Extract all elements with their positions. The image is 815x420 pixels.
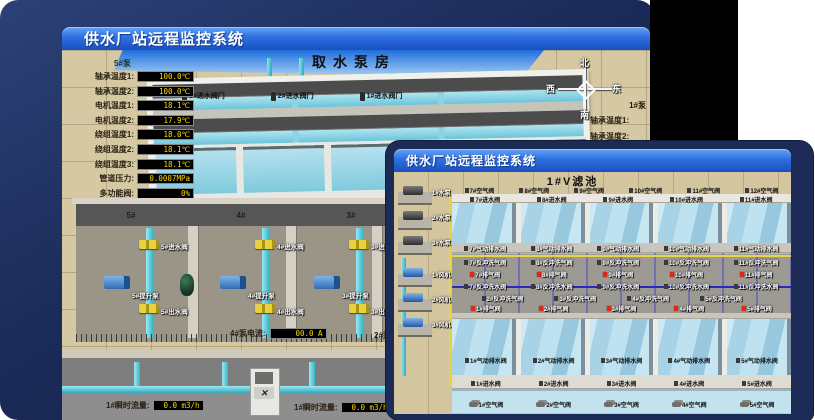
outlet-valve-icon[interactable] — [255, 304, 275, 313]
data-row: 管道压力: 0.0007MPa — [72, 173, 194, 184]
data-row-label: 绕组温度1: — [95, 129, 134, 140]
valve-label: 7#反冲洗气阀 — [469, 258, 506, 267]
exhaust-valve[interactable]: 2#排气阀 — [539, 304, 569, 313]
valve-label: 10#排气阀 — [675, 270, 703, 279]
valve-icon — [734, 284, 738, 289]
valve-icon — [533, 358, 537, 363]
valve-label: 2#进水阀 — [544, 379, 569, 388]
filter-cell[interactable] — [452, 319, 516, 375]
backwash-air-valve[interactable]: 8#反冲洗气阀 — [531, 258, 573, 267]
backwash-air-valve[interactable]: 9#反冲洗气阀 — [597, 258, 639, 267]
valve-icon — [471, 381, 475, 386]
valve-icon — [465, 358, 469, 363]
exhaust-valve[interactable]: 5#排气阀 — [742, 304, 772, 313]
backwash-air-valve-row: 7#反冲洗气阀 8#反冲洗气阀 9#反冲洗气阀 10#反冲洗气阀 — [452, 258, 791, 267]
valve-label: 4#进水阀 — [679, 379, 704, 388]
machine-column: 1#水泵 2#水泵 3#水泵 1#风机 2#风机 — [394, 180, 452, 380]
pump-icon[interactable] — [314, 276, 340, 289]
valve-label: 4#反冲洗气阀 — [632, 294, 669, 303]
valve-icon — [607, 381, 611, 386]
pump-icon[interactable] — [104, 276, 130, 289]
blower-unit[interactable]: 1#风机 — [398, 266, 452, 286]
backwash-air-valve[interactable]: 5#反冲洗气阀 — [700, 294, 742, 303]
valve-icon — [674, 381, 678, 386]
pipe-riser-icon — [267, 58, 272, 77]
current-label: 4#泵电流: — [230, 328, 266, 339]
pump5-panel-title: 5#泵 — [114, 58, 131, 69]
pump-label: 5#提升泵 — [132, 290, 159, 300]
drain-valve-row-bottom: 1#气动排水阀 2#气动排水阀 3#气动排水阀 4#气动排水阀 5#气动排水阀 — [452, 356, 791, 365]
valve-icon — [539, 381, 543, 386]
valve-label: 1#进水阀 — [476, 379, 501, 388]
filter-cell[interactable] — [727, 203, 791, 243]
exhaust-valve[interactable]: 10#排气阀 — [670, 270, 703, 279]
filter-cell[interactable] — [658, 319, 722, 375]
valve-label: 4#排气阀 — [679, 304, 704, 313]
valve-label: 2#空气阀 — [546, 400, 571, 409]
valve-label: 2#排气阀 — [544, 304, 569, 313]
valve-icon — [271, 92, 276, 101]
data-row-label: 电机温度1: — [95, 100, 134, 111]
outlet-valve-icon[interactable] — [349, 304, 369, 313]
pump-unit[interactable]: 3#水泵 — [398, 234, 452, 254]
backwash-air-valve[interactable]: 7#反冲洗气阀 — [464, 258, 506, 267]
air-valve-icon — [604, 402, 613, 407]
valve-icon — [519, 188, 523, 193]
inlet-valve[interactable]: 2#进水阀 — [539, 379, 569, 388]
pump-label: 1#水泵 — [432, 188, 451, 197]
lcd-readout[interactable]: 17.9℃ — [137, 115, 194, 126]
pipe-stub-icon — [309, 362, 315, 387]
valve-icon — [670, 197, 674, 202]
valve-icon — [465, 188, 469, 193]
pipe-riser-icon — [299, 58, 304, 77]
pump-bay: 3#进水阀 3#提升泵 3#出水阀 — [296, 228, 392, 340]
air-valve-icon — [740, 402, 749, 407]
valve-label: 1#排气阀 — [476, 304, 501, 313]
lcd-readout[interactable]: 00.0 A — [270, 328, 327, 339]
pipe-stub-icon — [134, 362, 140, 387]
lcd-readout[interactable]: 18.1℃ — [137, 159, 194, 170]
valve-icon — [464, 246, 468, 251]
compass-south: 南 — [580, 108, 589, 121]
filter-cell[interactable] — [452, 203, 516, 243]
drain-valve[interactable]: 2#气动排水阀 — [533, 356, 575, 365]
inlet-valve[interactable]: 4#进水阀 — [674, 379, 704, 388]
inlet-valve[interactable]: 3#进水阀 — [607, 379, 637, 388]
exhaust-valve-icon — [742, 306, 746, 311]
data-row: 绕组温度2: 18.1℃ — [72, 144, 194, 155]
data-row: 轴承温度2: 100.0℃ — [72, 86, 194, 97]
pump-unit[interactable]: 2#水泵 — [398, 209, 452, 229]
valve-icon — [734, 246, 738, 251]
pump-label: 2#水泵 — [432, 213, 451, 222]
inlet-valve-label: 5#进水阀 — [161, 241, 188, 251]
valve-label: 3#反冲洗气阀 — [559, 294, 596, 303]
exhaust-valve[interactable]: 4#排气阀 — [674, 304, 704, 313]
valve-label: 7#气动排水阀 — [469, 244, 506, 253]
valve-label: 3#排气阀 — [612, 304, 637, 313]
valve-icon — [664, 260, 668, 265]
inlet-valve[interactable]: 2#进水阀门 — [271, 91, 314, 101]
valve-label: 5#气动排水阀 — [741, 356, 778, 365]
data-row-label: 轴承温度1: — [95, 71, 134, 82]
blower-icon — [403, 268, 423, 277]
pump-bay: 4#进水阀 4#提升泵 4#出水阀 — [202, 228, 298, 340]
data-row: 电机温度2: 17.9℃ — [72, 115, 194, 126]
data-row-label: 绕组温度3: — [95, 159, 134, 170]
filter-pools-bottom — [452, 319, 791, 375]
pipe-gallery: 7#反冲洗气阀 8#反冲洗气阀 9#反冲洗气阀 10#反冲洗气阀 — [452, 253, 791, 313]
filter-pools-top — [452, 203, 791, 243]
valve-label: 8#排气阀 — [542, 270, 567, 279]
drain-valve[interactable]: 9#气动排水阀 — [597, 244, 639, 253]
exhaust-valve-icon — [539, 306, 543, 311]
compass-north: 北 — [580, 56, 589, 69]
valve-label: 8#反冲洗水阀 — [536, 282, 573, 291]
valve-label: 3#进水阀 — [612, 379, 637, 388]
filter-cell[interactable] — [521, 203, 585, 243]
lcd-readout[interactable]: 100.0℃ — [137, 86, 194, 97]
valve-icon — [700, 296, 704, 301]
flow-readout-2: 1#瞬时流量: 0.0 m3/h — [294, 402, 392, 413]
exhaust-valve-row-lower: 1#排气阀 2#排气阀 3#排气阀 4#排气阀 5#排气阀 — [452, 304, 791, 313]
blower-unit[interactable]: 2#风机 — [398, 291, 452, 311]
backwash-pumps: 1#水泵 2#水泵 3#水泵 — [398, 184, 452, 254]
air-valve[interactable]: 4#空气阀 — [672, 400, 707, 409]
exhaust-valve[interactable]: 1#排气阀 — [471, 304, 501, 313]
lcd-readout[interactable]: 100.0℃ — [137, 71, 194, 82]
drain-valve[interactable]: 8#气动排水阀 — [531, 244, 573, 253]
valve-label: 1#空气阀 — [479, 400, 504, 409]
valve-icon — [664, 284, 668, 289]
valve-icon — [574, 188, 578, 193]
lcd-readout[interactable]: 18.0℃ — [137, 129, 194, 140]
blower-unit[interactable]: 3#风机 — [398, 316, 452, 336]
valve-label: 11#气动排水阀 — [739, 244, 779, 253]
drain-valve[interactable]: 5#气动排水阀 — [736, 356, 778, 365]
valve-label: 9#排气阀 — [608, 270, 633, 279]
air-valve-row-bottom: 1#空气阀 2#空气阀 3#空气阀 4#空气阀 5#空气阀 — [452, 400, 791, 409]
valve-icon — [736, 358, 740, 363]
pump-unit[interactable]: 1#水泵 — [398, 184, 452, 204]
outlet-main-pipe — [62, 386, 404, 393]
backwash-water-valve[interactable]: 10#反冲洗水阀 — [664, 282, 709, 291]
dosing-tank-icon[interactable] — [180, 274, 194, 296]
valve-label: 1#气动排水阀 — [470, 356, 507, 365]
scene1-heading: 取水泵房 — [312, 52, 396, 72]
backwash-air-valve[interactable]: 2#反冲洗气阀 — [482, 294, 524, 303]
drain-valve[interactable]: 1#气动排水阀 — [465, 356, 507, 365]
inlet-valve[interactable]: 1#进水阀 — [471, 379, 501, 388]
blower-label: 3#风机 — [432, 320, 451, 329]
outlet-valve-label: 5#出水阀 — [161, 306, 188, 316]
valve-label: 10#反冲洗水阀 — [669, 282, 709, 291]
compass-east: 东 — [612, 82, 621, 95]
pump-label: 3#水泵 — [432, 238, 451, 247]
window-v-filter: 供水厂站远程监控系统 1#V滤池 1#水泵 2#水泵 3#水泵 — [386, 141, 813, 420]
exhaust-valve-icon — [537, 272, 541, 277]
valve-icon — [537, 197, 541, 202]
drain-valve[interactable]: 7#气动排水阀 — [464, 244, 506, 253]
valve-label: 5#空气阀 — [750, 400, 775, 409]
valve-label: 7#反冲洗水阀 — [469, 282, 506, 291]
lcd-readout[interactable]: 18.1℃ — [137, 144, 194, 155]
valve-label: 11#排气阀 — [745, 270, 773, 279]
air-valve-icon — [536, 402, 545, 407]
window2-title: 供水厂站远程监控系统 — [394, 152, 536, 169]
inlet-valve-label: 1#进水阀门 — [367, 91, 403, 101]
filter-cell[interactable] — [521, 319, 585, 375]
air-valve[interactable]: 2#空气阀 — [536, 400, 571, 409]
pump-icon — [403, 186, 423, 195]
exhaust-valve-icon — [470, 272, 474, 277]
backwash-air-valve-row-lower: 2#反冲洗气阀 3#反冲洗气阀 4#反冲洗气阀 5#反冲洗气阀 — [466, 294, 758, 303]
inlet-valve-icon[interactable] — [255, 240, 275, 249]
flow-label: 1#瞬时流量: — [294, 402, 338, 413]
valve-icon — [554, 296, 558, 301]
inlet-valve-row: 3#进水阀门 2#进水阀门 1#进水阀门 — [182, 91, 532, 101]
filter-cell[interactable] — [727, 319, 791, 375]
valve-label: 10#反冲洗气阀 — [669, 258, 709, 267]
lcd-readout[interactable]: 0.0 m3/h — [341, 402, 392, 413]
pump-label: 3#提升泵 — [342, 290, 369, 300]
valve-label: 5#进水阀 — [747, 379, 772, 388]
bay-number-label: 3# — [347, 211, 356, 220]
lcd-readout[interactable]: 0.0 m3/h — [153, 400, 204, 411]
backwash-water-valve[interactable]: 8#反冲洗水阀 — [531, 282, 573, 291]
pipe-stub-icon — [222, 362, 228, 387]
valve-label: 2#气动排水阀 — [538, 356, 575, 365]
air-valve-icon — [469, 402, 478, 407]
valve-label: 9#反冲洗水阀 — [602, 282, 639, 291]
pump-icon — [403, 211, 423, 220]
blower-label: 2#风机 — [432, 295, 451, 304]
inlet-valve[interactable]: 5#进水阀 — [742, 379, 772, 388]
valve-icon — [603, 197, 607, 202]
backwash-water-valve[interactable]: 7#反冲洗水阀 — [464, 282, 506, 291]
valve-label: 3#气动排水阀 — [606, 356, 643, 365]
inlet-valve[interactable]: 1#进水阀门 — [360, 91, 403, 101]
drain-valve[interactable]: 4#气动排水阀 — [668, 356, 710, 365]
data-row: 绕组温度3: 18.1℃ — [72, 159, 194, 170]
valve-label: 4#空气阀 — [682, 400, 707, 409]
valve-icon — [531, 260, 535, 265]
flow-readout-1: 1#瞬时流量: 0.0 m3/h — [106, 400, 204, 411]
exhaust-valve-icon — [607, 306, 611, 311]
window2-titlebar[interactable]: 供水厂站远程监控系统 — [394, 149, 791, 172]
exhaust-valve-row-upper: 7#排气阀 8#排气阀 9#排气阀 10#排气阀 11#排气阀 — [452, 270, 791, 279]
backwash-air-valve[interactable]: 3#反冲洗气阀 — [554, 294, 596, 303]
bay-number-label: 5# — [127, 211, 136, 220]
valve-icon — [360, 92, 365, 101]
data-row-label: 绕组温度2: — [95, 144, 134, 155]
exhaust-valve-icon — [674, 306, 678, 311]
air-valve[interactable]: 3#空气阀 — [604, 400, 639, 409]
valve-icon — [464, 284, 468, 289]
pump1-panel-rows: 轴承温度1:轴承温度2: — [590, 115, 650, 142]
inlet-valve-row-bottom: 1#进水阀 2#进水阀 3#进水阀 4#进水阀 5#进水阀 — [452, 379, 791, 388]
valve-icon — [482, 296, 486, 301]
pump5-panel-rows: 轴承温度1: 100.0℃ 轴承温度2: 100.0℃ 电机温度1: 18.1℃… — [72, 71, 194, 199]
bay-number-label: 4# — [237, 211, 246, 220]
data-row-label: 管道压力: — [99, 173, 134, 184]
valve-icon — [627, 296, 631, 301]
backwash-water-valve-row: 7#反冲洗水阀 8#反冲洗水阀 9#反冲洗水阀 10#反冲洗水阀 — [452, 282, 791, 291]
v-filter-scene: 1#V滤池 1#水泵 2#水泵 3#水泵 1# — [394, 172, 791, 414]
pump-icon — [403, 236, 423, 245]
blowers: 1#风机 2#风机 3#风机 — [398, 266, 452, 336]
backwash-water-valve[interactable]: 9#反冲洗水阀 — [597, 282, 639, 291]
flowmeter-icon[interactable]: ✕ — [250, 368, 280, 416]
valve-label: 8#反冲洗气阀 — [536, 258, 573, 267]
data-row-label: 轴承温度2: — [95, 86, 134, 97]
data-row: 电机温度1: 18.1℃ — [72, 100, 194, 111]
filter-cell[interactable] — [658, 203, 722, 243]
valve-icon — [464, 260, 468, 265]
valve-icon — [740, 197, 744, 202]
exhaust-valve[interactable]: 3#排气阀 — [607, 304, 637, 313]
valve-icon — [470, 197, 474, 202]
pump1-data-panel-partial: 1#泵 轴承温度1:轴承温度2: — [590, 100, 650, 142]
outlet-valve-icon[interactable] — [139, 304, 159, 313]
pump4-current-readout: 4#泵电流: 00.0 A — [230, 328, 327, 339]
backwash-air-valve[interactable]: 4#反冲洗气阀 — [627, 294, 669, 303]
valve-icon — [597, 260, 601, 265]
valve-label: 3#空气阀 — [614, 400, 639, 409]
exhaust-valve-icon — [670, 272, 674, 277]
exhaust-valve[interactable]: 9#排气阀 — [603, 270, 633, 279]
valve-label: 5#反冲洗气阀 — [705, 294, 742, 303]
valve-icon — [531, 246, 535, 251]
valve-icon — [687, 188, 691, 193]
valve-icon — [601, 358, 605, 363]
window1-title: 供水厂站远程监控系统 — [62, 28, 244, 49]
valve-icon — [668, 358, 672, 363]
air-valve-icon — [672, 402, 681, 407]
exhaust-valve-icon — [740, 272, 744, 277]
inlet-valve-label: 3#进水阀门 — [189, 91, 225, 101]
backwash-air-valve[interactable]: 10#反冲洗气阀 — [664, 258, 709, 267]
exhaust-valve[interactable]: 8#排气阀 — [537, 270, 567, 279]
drain-valve-row-top: 7#气动排水阀 8#气动排水阀 9#气动排水阀 10#气动排水阀 11#气动排水… — [452, 244, 791, 253]
valve-label: 2#反冲洗气阀 — [487, 294, 524, 303]
valve-icon — [597, 284, 601, 289]
data-row-label: 轴承温度1: — [590, 115, 650, 126]
backwash-air-valve[interactable]: 11#反冲洗气阀 — [734, 258, 779, 267]
valve-label: 8#气动排水阀 — [536, 244, 573, 253]
valve-label: 9#气动排水阀 — [602, 244, 639, 253]
exhaust-valve[interactable]: 11#排气阀 — [740, 270, 773, 279]
pump1-panel-title: 1#泵 — [590, 100, 650, 111]
lcd-readout[interactable]: 18.1℃ — [137, 100, 194, 111]
exhaust-valve-icon — [471, 306, 475, 311]
valve-label: 10#气动排水阀 — [669, 244, 709, 253]
lcd-readout[interactable]: 0.0007MPa — [137, 173, 194, 184]
valve-label: 9#反冲洗气阀 — [602, 258, 639, 267]
valve-icon — [664, 246, 668, 251]
black-backdrop — [650, 0, 738, 142]
valve-icon — [597, 246, 601, 251]
air-valve[interactable]: 5#空气阀 — [740, 400, 775, 409]
inlet-valve-icon[interactable] — [349, 240, 369, 249]
filter-cell[interactable] — [590, 319, 654, 375]
data-row: 轴承温度1: 100.0℃ — [72, 71, 194, 82]
backwash-water-valve[interactable]: 11#反冲洗水阀 — [734, 282, 779, 291]
compass-west: 西 — [546, 82, 555, 95]
data-row: 绕组温度1: 18.0℃ — [72, 129, 194, 140]
pump-icon[interactable] — [220, 276, 246, 289]
filter-cell[interactable] — [590, 203, 654, 243]
valve-label: 5#排气阀 — [747, 304, 772, 313]
valve-label: 11#反冲洗水阀 — [739, 282, 779, 291]
valve-icon — [742, 381, 746, 386]
pump-bay: 5#进水阀 5#提升泵 5#出水阀 — [86, 228, 182, 340]
valve-icon — [745, 188, 749, 193]
air-header-pipe — [452, 255, 791, 257]
valve-label: 11#反冲洗气阀 — [739, 258, 779, 267]
blower-icon — [403, 318, 423, 327]
data-row-label: 电机温度2: — [95, 115, 134, 126]
screenshot-stage: 供水厂站远程监控系统 取水泵房 3#进水阀门 2#进水阀门 — [0, 0, 815, 420]
drain-valve[interactable]: 3#气动排水阀 — [601, 356, 643, 365]
valve-icon — [531, 284, 535, 289]
blower-icon — [403, 293, 423, 302]
valve-icon — [629, 188, 633, 193]
drain-valve[interactable]: 11#气动排水阀 — [734, 244, 779, 253]
inlet-valve-icon[interactable] — [139, 240, 159, 249]
exhaust-valve-icon — [603, 272, 607, 277]
window1-titlebar[interactable]: 供水厂站远程监控系统 — [62, 27, 650, 50]
air-valve[interactable]: 1#空气阀 — [469, 400, 504, 409]
exhaust-valve[interactable]: 7#排气阀 — [470, 270, 500, 279]
flow-label: 1#瞬时流量: — [106, 400, 150, 411]
blower-label: 1#风机 — [432, 270, 451, 279]
pump-label: 4#提升泵 — [248, 290, 275, 300]
drain-valve[interactable]: 10#气动排水阀 — [664, 244, 709, 253]
valve-label: 7#排气阀 — [475, 270, 500, 279]
valve-label: 4#气动排水阀 — [673, 356, 710, 365]
valve-icon — [734, 260, 738, 265]
inlet-valve-label: 2#进水阀门 — [278, 91, 314, 101]
filter-cells-area: 7#空气阀 8#空气阀 9#空气阀 10#空气阀 11#空气阀 — [452, 184, 791, 414]
